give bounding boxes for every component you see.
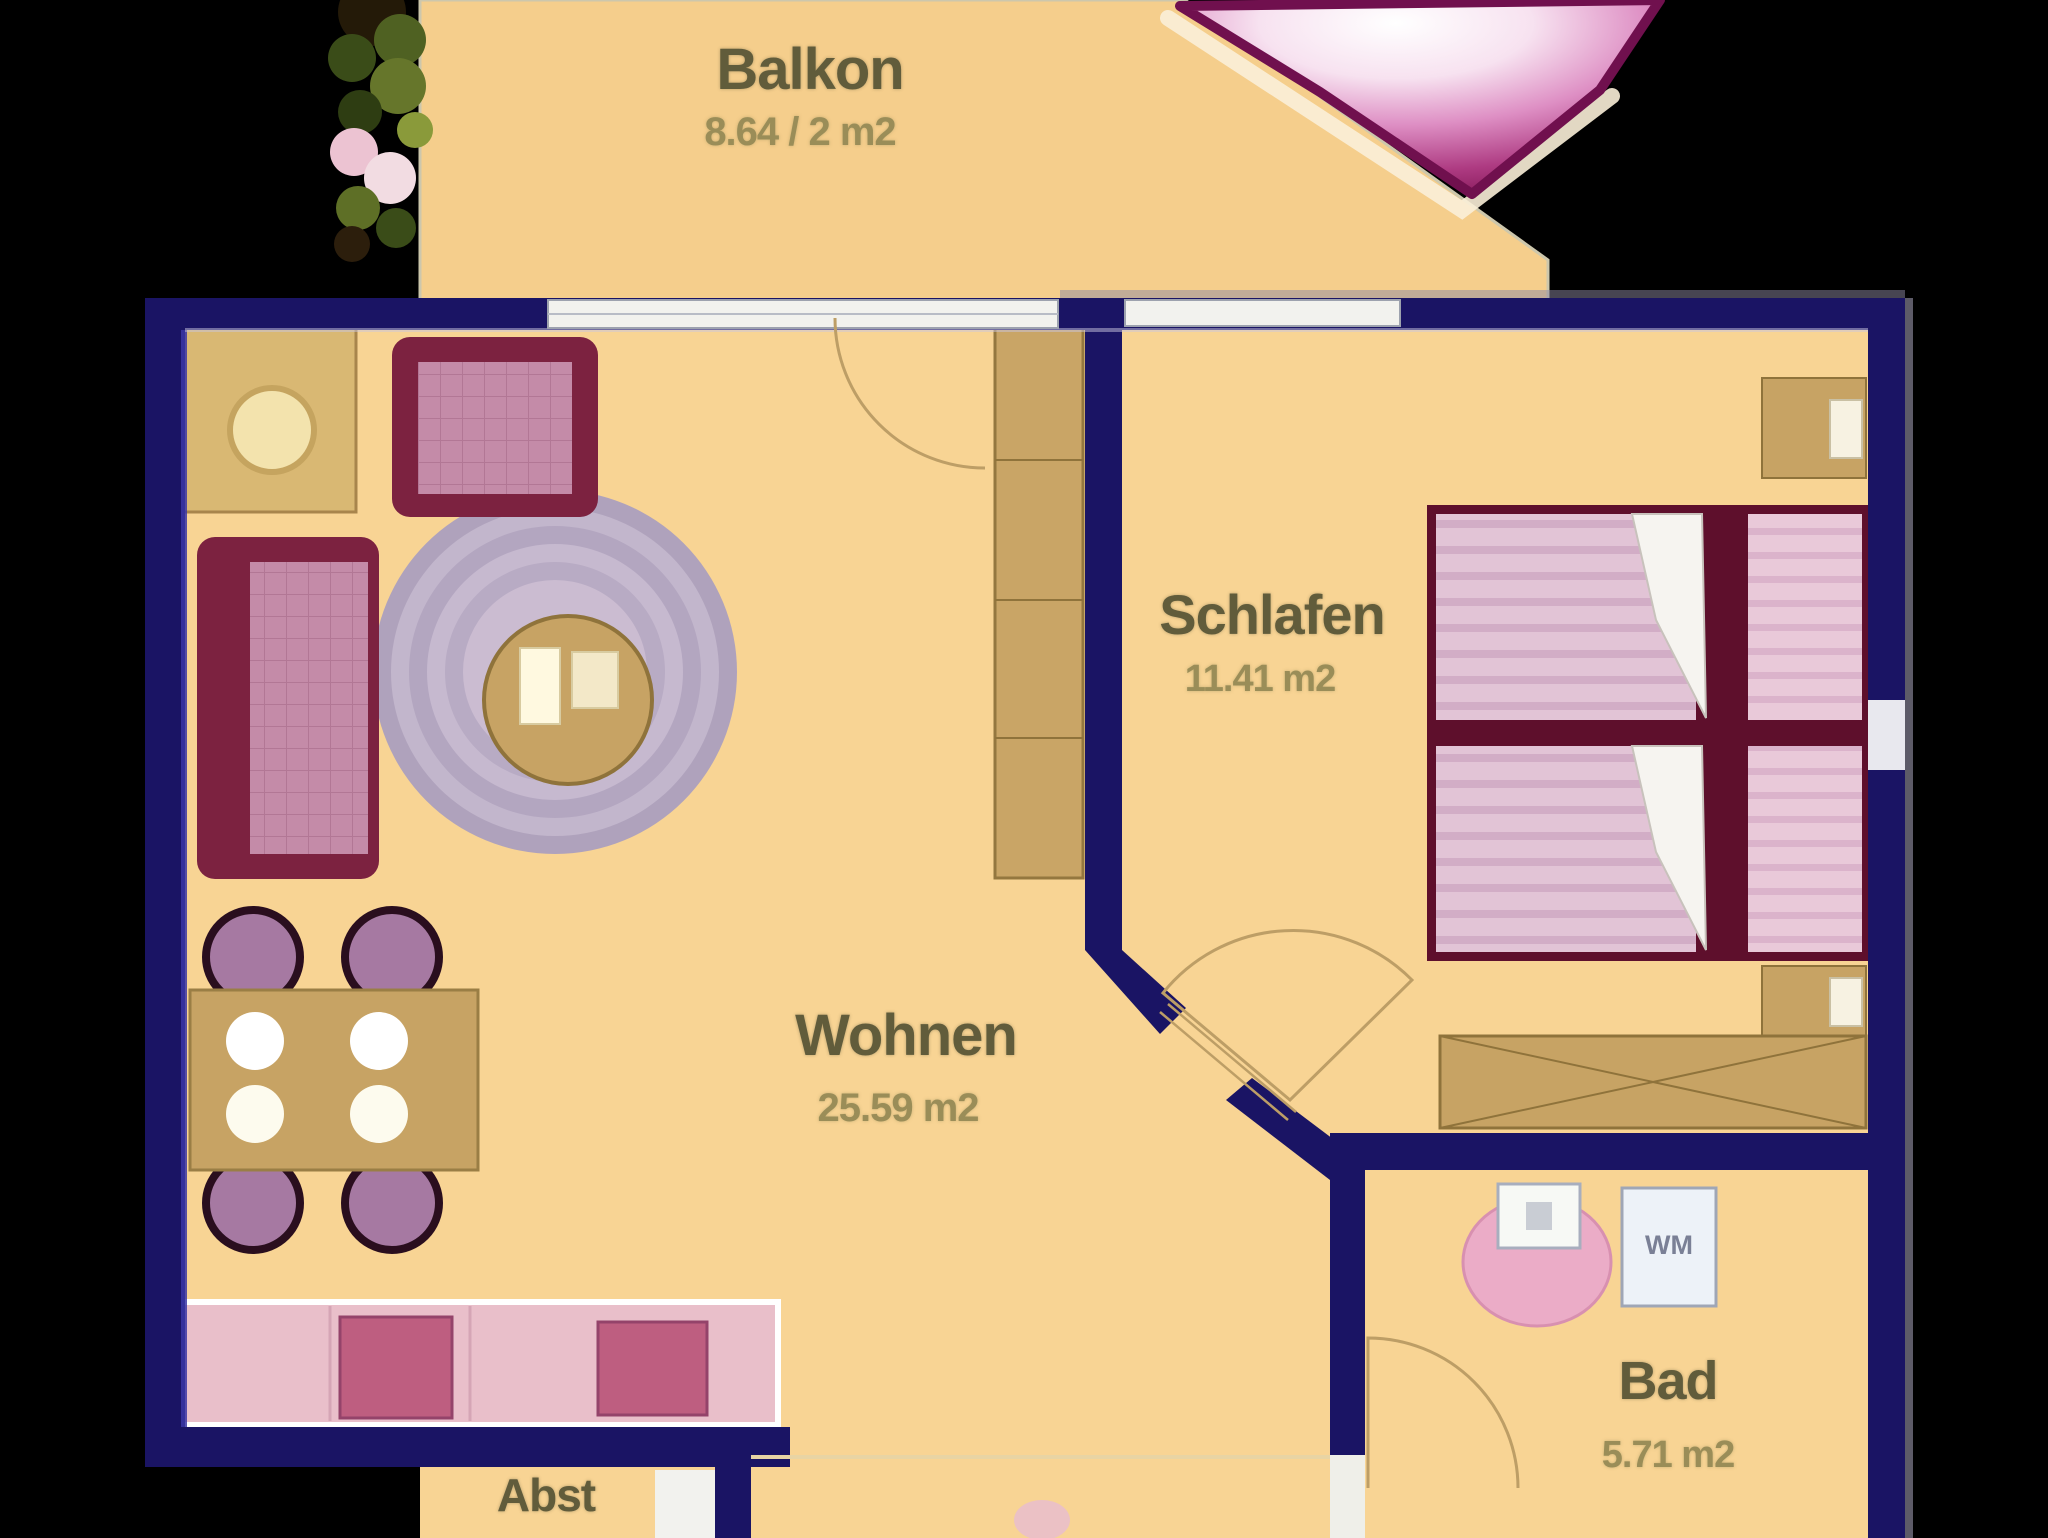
plant-blob-icon xyxy=(336,186,380,230)
magazine xyxy=(520,648,560,724)
bedroom-side-window xyxy=(1868,700,1905,770)
label-balkon: Balkon xyxy=(716,36,903,103)
kitchen-hob-icon xyxy=(230,388,314,472)
label-wohnen: Wohnen xyxy=(795,1002,1017,1069)
label-wohnen-area: 25.59 m2 xyxy=(817,1086,978,1131)
label-schlafen: Schlafen xyxy=(1159,582,1384,647)
floorplan-canvas: Balkon 8.64 / 2 m2 Schlafen 11.41 m2 Woh… xyxy=(0,0,2048,1538)
label-bad-area: 5.71 m2 xyxy=(1602,1434,1734,1477)
label-balkon-area: 8.64 / 2 m2 xyxy=(704,110,895,155)
plant-blob-icon xyxy=(376,208,416,248)
wall-outer-shadow xyxy=(1060,290,1905,298)
dining-table xyxy=(190,990,478,1170)
bathroom-door-threshold xyxy=(1330,1455,1365,1538)
washbasin-drain-icon xyxy=(1526,1202,1552,1230)
counter-sink xyxy=(598,1322,707,1415)
floorplan-drawing xyxy=(0,0,2048,1538)
wall-abst-right xyxy=(715,1427,751,1538)
wall-right xyxy=(1868,298,1905,1538)
abst-door xyxy=(655,1470,715,1538)
bed-pillow xyxy=(1748,746,1862,952)
plate xyxy=(226,1085,284,1143)
wall-left xyxy=(145,298,185,1467)
wall-bathroom-top xyxy=(1330,1133,1868,1170)
plant-blob-icon xyxy=(338,90,382,134)
label-bad: Bad xyxy=(1618,1350,1717,1412)
wall-bottom-left xyxy=(145,1427,790,1467)
balcony-plant xyxy=(328,0,433,262)
plate xyxy=(226,1012,284,1070)
wall-living-bedroom xyxy=(1085,313,1122,950)
plant-blob-icon xyxy=(328,34,376,82)
label-washing-machine: WM xyxy=(1645,1230,1693,1261)
label-schlafen-area: 11.41 m2 xyxy=(1185,658,1335,701)
nightstand-lamp-icon xyxy=(1830,978,1862,1026)
wall-outer-shadow xyxy=(1905,298,1913,1538)
bedroom-window xyxy=(1125,300,1400,326)
coffee-table xyxy=(484,616,652,784)
exterior-void xyxy=(145,1467,420,1538)
sofa-seat xyxy=(250,562,368,854)
plant-blob-icon xyxy=(334,226,370,262)
bed-pillow xyxy=(1748,514,1862,720)
wall-highlight xyxy=(181,330,187,1427)
plant-blob-icon xyxy=(397,112,433,148)
counter-stove xyxy=(340,1317,452,1418)
magazine xyxy=(572,652,618,708)
plate xyxy=(350,1085,408,1143)
armchair-seat xyxy=(418,362,572,494)
label-abst: Abst xyxy=(497,1468,595,1522)
plate xyxy=(350,1012,408,1070)
nightstand-lamp-icon xyxy=(1830,400,1862,458)
